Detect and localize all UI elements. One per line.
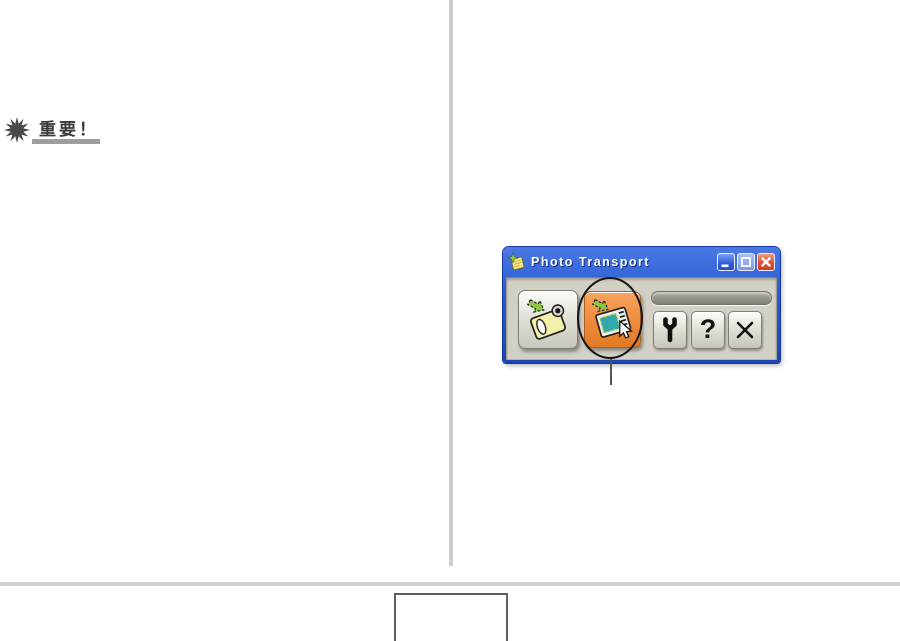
help-button[interactable]: ?: [691, 311, 725, 349]
annotation-callout-line: [610, 359, 612, 385]
manual-page: 重要！ Photo Transport: [0, 0, 900, 641]
app-notepad-icon[interactable]: [508, 253, 526, 271]
page-number-box: [394, 593, 508, 641]
x-icon: [734, 319, 756, 341]
close-button[interactable]: [757, 253, 775, 271]
annotation-circle: [577, 277, 643, 359]
important-burst-icon: [4, 117, 30, 143]
minimize-button[interactable]: [717, 253, 735, 271]
camera-transfer-button[interactable]: [518, 290, 578, 349]
maximize-icon: [740, 256, 752, 268]
maximize-button[interactable]: [737, 253, 755, 271]
question-mark-glyph: ?: [700, 316, 717, 343]
footer-rule: [0, 582, 900, 586]
important-underline: [32, 139, 100, 144]
progress-bar: [651, 291, 772, 305]
close-x-icon: [760, 256, 772, 268]
window-title: Photo Transport: [531, 255, 712, 269]
important-label: 重要！: [39, 115, 99, 140]
titlebar-controls: [717, 253, 775, 271]
camera-icon: [524, 296, 572, 344]
exit-button[interactable]: [728, 311, 762, 349]
column-divider: [449, 0, 453, 566]
wrench-icon: [658, 316, 682, 344]
settings-button[interactable]: [653, 311, 687, 349]
minimize-icon: [720, 256, 732, 268]
window-titlebar: Photo Transport: [506, 247, 777, 277]
